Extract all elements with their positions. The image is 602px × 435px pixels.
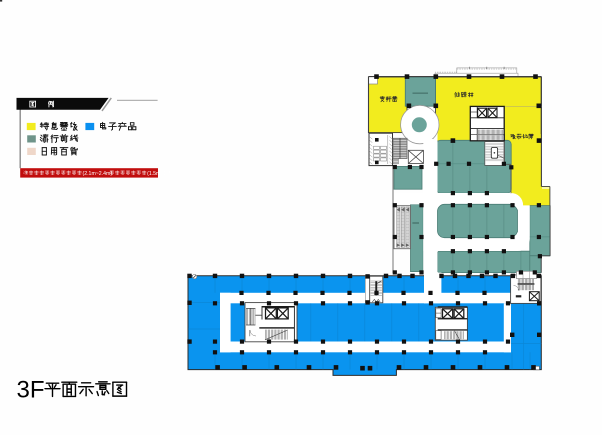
svg-text:(1.5m~1.8: (1.5m~1.8 <box>147 171 171 177</box>
svg-text:3F: 3F <box>17 377 45 404</box>
svg-text:(2.1m~2.4m): (2.1m~2.4m) <box>83 171 113 177</box>
